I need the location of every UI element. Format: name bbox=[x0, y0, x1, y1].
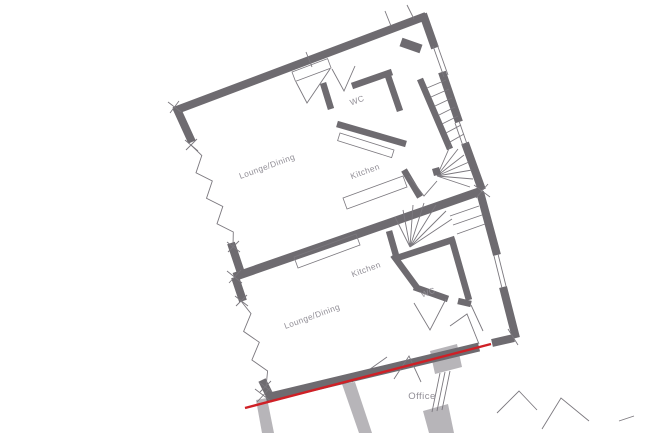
lower-flat-walls bbox=[235, 192, 516, 400]
office-bay-lower-block bbox=[423, 404, 454, 433]
zigzag-upper-end-ticks bbox=[185, 139, 240, 252]
floor-plan-drawing: Lounge/Dining Kitchen WC Kitchen Lounge/… bbox=[0, 0, 650, 433]
upper-right-wall-jut bbox=[401, 42, 421, 49]
floor-plan-page: Lounge/Dining Kitchen WC Kitchen Lounge/… bbox=[0, 0, 650, 433]
room-label-kitchen-lower: Kitchen bbox=[350, 259, 382, 279]
upper-stair-walls bbox=[404, 79, 450, 197]
lower-stair-treads bbox=[450, 206, 485, 234]
room-label-lounge-lower: Lounge/Dining bbox=[283, 301, 342, 330]
upper-wc-walls bbox=[323, 72, 406, 144]
lower-bottom-wall-right-piece bbox=[492, 338, 514, 343]
room-label-wc-upper: WC bbox=[348, 93, 365, 107]
wall-tick-far-right bbox=[619, 416, 634, 421]
party-wall bbox=[234, 191, 481, 277]
lower-right-door-leaf bbox=[471, 305, 483, 331]
room-label-lounge-upper: Lounge/Dining bbox=[238, 151, 297, 180]
upper-door-swing-2 bbox=[332, 66, 355, 91]
lower-front-door-swing bbox=[450, 314, 479, 344]
upper-top-wall bbox=[174, 16, 426, 111]
office-wall-middle bbox=[342, 382, 372, 433]
room-label-office: Office bbox=[408, 391, 436, 402]
lower-wc-door-swing bbox=[414, 299, 446, 330]
room-label-kitchen-upper: Kitchen bbox=[349, 161, 381, 181]
bay-window-zigzag-lower bbox=[241, 301, 268, 387]
lower-right-wall-segments bbox=[480, 192, 516, 338]
upper-right-window-2 bbox=[455, 121, 467, 146]
bay-window-zigzag-upper bbox=[191, 145, 233, 247]
red-demise-boundary bbox=[245, 344, 491, 408]
office-door-swing-mid bbox=[497, 391, 537, 413]
upper-flat-details bbox=[168, 5, 473, 252]
office-door-swing-right bbox=[542, 398, 589, 429]
boundary-red-line bbox=[245, 344, 491, 408]
zigzag-lower-end-ticks bbox=[235, 295, 272, 392]
lower-right-window bbox=[494, 254, 506, 288]
